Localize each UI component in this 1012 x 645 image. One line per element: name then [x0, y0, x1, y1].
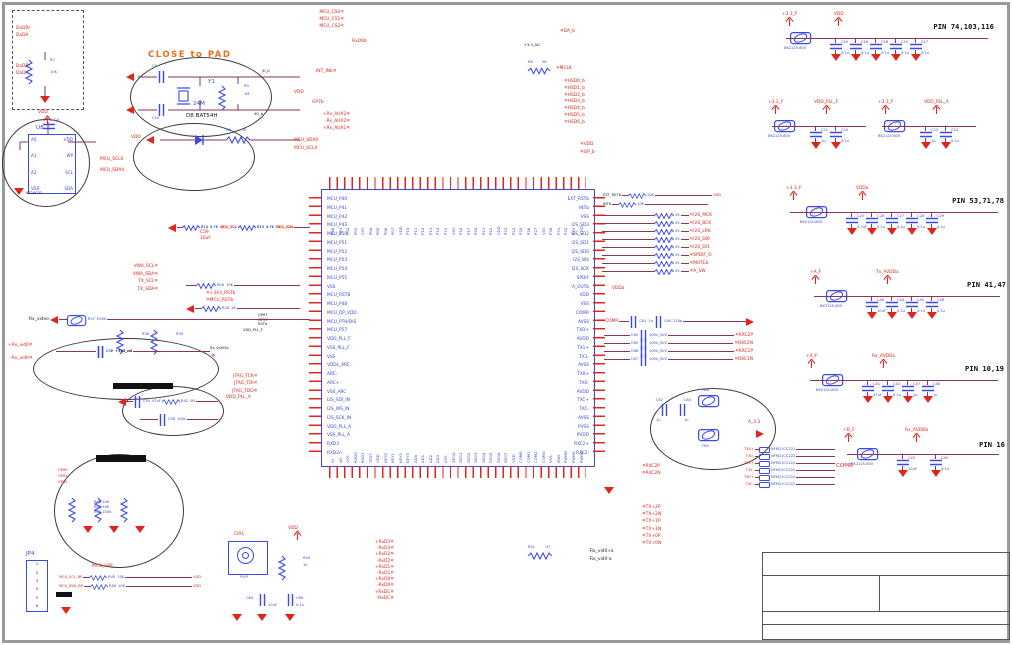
ref-des: C62	[656, 398, 663, 402]
ref-des: C61	[639, 320, 646, 324]
cap-cell: C200.1u	[828, 126, 843, 149]
series-res-row: 33 I2S_DI1	[602, 244, 738, 252]
net-label: MCU_VPP	[92, 564, 113, 569]
pin-label: AVDD	[529, 336, 589, 345]
ground-icon	[871, 54, 881, 61]
pin-label: P20	[473, 193, 481, 235]
capacitor-icon	[810, 131, 822, 138]
power-net: +D_F	[843, 428, 855, 443]
power-icon	[912, 433, 921, 443]
net-label: GP62	[58, 480, 68, 484]
resistor-icon	[654, 252, 674, 260]
capacitor-icon	[886, 217, 898, 224]
ferrite-bead-icon	[774, 119, 796, 133]
pin-label: SEG7	[503, 421, 511, 463]
net-label: Rx_vid0+a	[590, 549, 614, 554]
option-box	[12, 10, 84, 110]
highlight-ellipse-rc	[122, 386, 224, 436]
wire	[602, 271, 654, 273]
ref-des: JP4	[26, 551, 35, 557]
ref-des: R39	[176, 332, 183, 336]
resistor-icon	[654, 220, 674, 228]
net-label: MCU_SCL_BP	[59, 576, 82, 580]
highlight-bar	[96, 455, 146, 462]
capacitor-icon	[922, 385, 934, 392]
net-label: GP60	[58, 468, 68, 472]
net-label: +3.3_AD	[524, 43, 540, 47]
net-label: A_SW	[690, 270, 706, 274]
pin-label: VSS	[327, 354, 357, 363]
pin-label: TX0+	[529, 371, 589, 380]
ground-icon	[883, 396, 893, 403]
value-label: 0.1u	[921, 51, 929, 55]
value-label: 47uF	[152, 400, 161, 404]
net-arrow-icon	[126, 73, 135, 81]
series-res-row: 33 MUTEb	[602, 260, 738, 268]
value-label: 1K	[303, 563, 308, 567]
ic-pins-top	[329, 177, 586, 189]
cap-cell: C4010uF	[864, 296, 879, 319]
pin-label: P33	[571, 193, 579, 235]
rxc-pair: RXC2PRXC2N	[642, 464, 661, 476]
net-label: DaDA	[16, 33, 28, 38]
pin-label: P15	[443, 193, 451, 235]
value-label: 1u	[933, 393, 938, 397]
net-label: MCLK	[556, 66, 572, 71]
resistor-icon	[654, 260, 674, 268]
power-icon	[771, 105, 780, 115]
emi-filter-icon	[759, 461, 770, 467]
value-label: 10K	[102, 505, 109, 509]
wire	[604, 335, 630, 337]
connector-jp4: 123456	[26, 560, 48, 612]
power-icon	[811, 275, 820, 285]
pin-label: RXD0	[353, 421, 361, 463]
capacitor-icon	[890, 43, 902, 50]
pin-label: XI	[330, 421, 338, 463]
rst-row: EXT_RSTb 10K VDD	[602, 192, 722, 200]
title-block-row	[763, 553, 1009, 576]
value-label: 10K	[118, 585, 125, 589]
series-res-row: 33 SPDIF_O	[602, 252, 738, 260]
ref-des: C20	[841, 128, 848, 132]
value-label: 47	[546, 545, 551, 549]
ref-des: R49 10K	[94, 505, 111, 509]
net-label: TX+1N	[642, 527, 661, 532]
ref-des: C65	[631, 342, 638, 346]
wire	[796, 449, 835, 451]
net-label: GP61	[58, 474, 68, 478]
net-label: VDD_PLL_A	[226, 395, 251, 400]
resistor-icon	[90, 583, 108, 591]
filter-bank-41: +A_F Tx_AVDDa PIN 41,47 BK2125-600 C4010…	[810, 270, 1006, 342]
ref-des: C46	[937, 298, 944, 302]
net-label: MCU_SCL0	[100, 157, 123, 162]
wire	[796, 470, 835, 472]
jtag-column: JTAG_TCKJTAG_TDIJTAG_TDO	[232, 374, 257, 394]
pin-label: MCU_P53	[327, 257, 357, 266]
wire	[186, 285, 196, 287]
value-label: 1u	[648, 320, 653, 324]
emi-filter-icon	[759, 482, 770, 488]
value-label: BK2125-600	[816, 388, 838, 392]
capacitor-icon	[846, 217, 858, 224]
ref-des: R15	[257, 226, 264, 230]
pin-label: P02	[345, 193, 353, 235]
capacitor-icon	[830, 43, 842, 50]
net-label: GP7b	[312, 100, 324, 105]
ref-des: R48 10K	[94, 500, 111, 504]
net-label: DDC_SCL	[220, 226, 237, 230]
pin-label: VSS_ARC	[327, 389, 357, 398]
wire	[604, 351, 630, 353]
net-label: Rx_AUX1+	[323, 126, 350, 131]
value-label: 10K	[647, 194, 654, 198]
hv-cap-row: C66 100n_2kV RXC1P	[604, 348, 754, 356]
rxd-column: RxD3+RxD3-RxD2+RxD2-RxD1+RxD1-RxD0+RxD0-…	[352, 540, 394, 601]
pin-label: MCU_P52	[327, 249, 357, 258]
ground-icon	[907, 312, 917, 319]
ref-des: C84	[246, 596, 253, 600]
net-label: INT_INb	[316, 69, 337, 74]
value-label: 56	[542, 60, 547, 64]
pin-label: AVSS	[529, 362, 589, 371]
wire	[683, 321, 746, 323]
pin-label: I2S_SDI_IN	[327, 397, 357, 406]
cap-cell: C460.1u	[924, 296, 939, 319]
net-label: VDDa	[612, 286, 624, 291]
pin-note: PIN 16	[979, 440, 1005, 449]
wire	[602, 231, 654, 233]
pin-label: P10	[405, 193, 413, 235]
power-icon	[834, 17, 843, 27]
wire	[681, 231, 689, 233]
wire	[681, 215, 689, 217]
ref-des: FB8	[702, 388, 709, 392]
ref-des: C67	[631, 358, 638, 362]
cap-cell: C254.7uF	[844, 212, 859, 235]
resistor-icon	[654, 244, 674, 252]
ground-icon	[867, 228, 877, 235]
jp4-row: MCU_SCL_BP R45 10K VDD	[58, 574, 202, 582]
pin-label: MCU_P48	[327, 301, 357, 310]
net-label: JTAG_TCK	[232, 374, 257, 379]
ref-des: C66	[631, 350, 638, 354]
wire	[602, 247, 654, 249]
value-label: 220p	[673, 320, 682, 324]
net-label: I2S_BCK	[690, 222, 712, 226]
wire	[126, 586, 192, 588]
pin-label: P17	[466, 193, 474, 235]
ground-icon	[887, 312, 897, 319]
ground-icon	[911, 54, 921, 61]
value-label: 1u	[913, 393, 918, 397]
ic-top-pin-names: P00P01P02P03VSSP04P05P06P07VDDP10P11P12P…	[330, 193, 586, 235]
wire	[668, 343, 734, 345]
pin-note: PIN 74,103,116	[933, 22, 994, 31]
key-net-column: GP60GP61GP62	[58, 468, 68, 484]
net-label: I2S_LRK	[690, 230, 711, 234]
cap-cell: C18 0.1u	[868, 38, 883, 61]
net-label: RXC1P	[735, 350, 753, 354]
power-net: Rx_AVDDa	[872, 354, 895, 369]
capacitor-icon	[866, 301, 878, 308]
pin-label: MCU_P57	[327, 327, 357, 336]
net-label: RXC1N	[734, 358, 753, 362]
value-label: 0.1u	[941, 467, 949, 471]
emi-filter-row: TX1- NFM21CC222	[735, 467, 835, 474]
value-label: 1K	[242, 128, 247, 132]
cap-cell: C211u	[808, 126, 823, 149]
value-label: 1u	[821, 139, 826, 143]
cap-cell: C440.1u	[884, 296, 899, 319]
net-label: TX1+	[736, 462, 754, 466]
wire	[604, 343, 630, 345]
pin-label: P32	[563, 193, 571, 235]
wire	[59, 319, 67, 321]
value-label: NFM21CC222	[771, 469, 795, 473]
pin-label: MCU_PTH/DIS	[327, 319, 357, 328]
series-res-row: 33 I2S_LRK	[602, 228, 738, 236]
ferrite-bead-icon	[698, 428, 720, 442]
ref-des: C58	[168, 418, 175, 422]
wire	[602, 263, 654, 265]
wire	[140, 419, 158, 421]
value-label: 10K	[102, 500, 109, 504]
value-label: 10K	[226, 284, 233, 288]
capacitor-icon	[926, 301, 938, 308]
value-label: 1K	[231, 307, 236, 311]
emi-filter-icon	[759, 447, 770, 453]
net-label: RxD0b	[352, 39, 367, 44]
net-label: +3V3_RSTb	[206, 291, 235, 296]
ground-icon	[831, 54, 841, 61]
pin-label: SPDIF	[529, 275, 589, 284]
ir-receiver	[228, 541, 268, 575]
wire	[668, 351, 734, 353]
series-res-row: 33 I2S_MCK	[602, 212, 738, 220]
value-label: 33	[675, 230, 680, 234]
ref-des: C63	[684, 398, 691, 402]
capacitor-icon	[158, 414, 167, 426]
wire	[234, 285, 300, 287]
net-arrow-icon	[746, 318, 754, 326]
capacitor-icon	[258, 594, 267, 606]
pin-number: 2	[36, 572, 38, 575]
pin-label: A1	[31, 153, 39, 158]
cap-cell: C4310uF	[895, 454, 910, 477]
value-label: 0.1u	[937, 225, 945, 229]
net-label: I2S_DI0	[690, 238, 710, 242]
ref-des: C29	[937, 214, 944, 218]
ground-icon	[903, 396, 913, 403]
cap-bank: C211uC200.1u	[808, 126, 843, 149]
ref-des: FB9	[702, 444, 709, 448]
power-icon	[822, 105, 831, 115]
ferrite-bead-icon	[857, 447, 879, 461]
power-net: VDD	[834, 12, 844, 27]
net-label: RXC2N	[642, 471, 661, 476]
capacitor-icon	[906, 301, 918, 308]
title-block-row	[763, 611, 1009, 625]
pin-label: I2S_SCK	[529, 266, 589, 275]
pin-label: VSS	[529, 301, 589, 310]
pin-label: RXD1	[360, 421, 368, 463]
pin-note: PIN 10,19	[965, 364, 1004, 373]
ref-des: R49	[94, 505, 101, 509]
net-label: TX0-	[736, 455, 754, 459]
cap-cell: C260.1u	[864, 212, 879, 235]
cap-cell: C231u	[918, 126, 933, 149]
net-label: I2S_MCK	[690, 214, 712, 218]
pin-label: SDA	[64, 186, 73, 191]
net-label: TX_SCL	[96, 279, 158, 284]
net-label: I2S_DI1	[690, 246, 710, 250]
hv-cap-rows: C64 100n_2kV RXC2P C65 100n_2kV RXC2N C6…	[604, 332, 754, 364]
ref-des: C17	[921, 40, 928, 44]
resistor-icon	[654, 236, 674, 244]
power-net: Rx_AVDDb	[905, 428, 928, 443]
ref-des: R28	[222, 307, 229, 311]
pin-label: I2S_SD0	[529, 249, 589, 258]
value-label: 0.1u	[951, 139, 959, 143]
part-number: AT24C02	[26, 191, 42, 195]
pin-label: TX1-	[529, 354, 589, 363]
wire	[681, 255, 689, 257]
pin-label: MCU_P54	[327, 266, 357, 275]
emi-filter-icon	[759, 475, 770, 481]
wire	[655, 195, 712, 197]
ground-icon	[907, 228, 917, 235]
ground-icon	[847, 228, 857, 235]
net-label: MCU_RSTb	[206, 298, 233, 303]
power-icon	[807, 359, 816, 369]
capacitor-icon	[870, 43, 882, 50]
ref-des: R6	[528, 60, 533, 64]
resistor-icon	[654, 268, 674, 276]
wire	[133, 351, 210, 353]
net-label: DDC_SDA	[276, 226, 293, 230]
ref-des: C10	[152, 116, 159, 120]
ref-des: C49	[941, 456, 948, 460]
power-net: +3.3_F	[768, 100, 783, 115]
ref-des: R8	[226, 128, 231, 132]
net-label: MUTEb	[690, 262, 709, 266]
resistor-icon	[182, 224, 200, 232]
net-label: COMR	[605, 320, 618, 324]
value-label: 10K	[50, 70, 57, 74]
net-label: MCU_SDA0	[100, 168, 124, 173]
value-label: BK2125-600	[878, 134, 900, 138]
net-label: VDD	[38, 110, 48, 115]
wire	[619, 321, 629, 323]
value-label: NFM21CC222	[771, 455, 795, 459]
pin-label: MCU_RSTB	[327, 292, 357, 301]
value-label: 1u	[684, 418, 689, 422]
net-label: VDD	[193, 576, 201, 580]
ground-icon	[891, 54, 901, 61]
cap-bank: C254.7uFC260.1uC270.1uC280.1uC290.1u	[844, 212, 939, 235]
ground-icon	[931, 470, 941, 477]
net-arrow-icon	[126, 106, 135, 114]
net-label: XO_b	[254, 112, 263, 116]
wire	[668, 359, 734, 361]
net-label: RXC2P	[642, 464, 661, 469]
wire	[602, 255, 654, 257]
cap-cell: C420.1u	[880, 380, 895, 403]
ground-icon	[257, 614, 267, 621]
net-label: JTAG_TDI	[232, 381, 257, 386]
net-arrow-icon	[211, 344, 215, 360]
capacitor-icon	[930, 459, 942, 466]
ic-pins-bottom	[329, 466, 586, 478]
cap-cell: C280.1u	[904, 212, 919, 235]
net-label: VDD	[294, 90, 304, 95]
value-label: NFM21CC222	[771, 476, 795, 480]
wire	[681, 271, 689, 273]
reset-row: R28 1K	[186, 305, 300, 313]
series-res-row: 33 I2S_DI0	[602, 236, 738, 244]
net-label: HSD6_b	[564, 120, 585, 125]
value-label: 24M	[193, 101, 205, 107]
ground-icon	[851, 54, 861, 61]
ferrite-bead-icon	[698, 394, 720, 408]
value-label: 33	[675, 238, 680, 242]
pin-label: MCU_P55	[327, 275, 357, 284]
ground-icon	[285, 614, 295, 621]
pin-label: P27	[533, 193, 541, 235]
capacitor-icon	[862, 385, 874, 392]
capacitor-icon	[920, 131, 932, 138]
power-net: Tx_AVDDa	[876, 270, 899, 285]
ref-des: R50	[94, 510, 101, 514]
ground-icon	[941, 142, 951, 149]
pullup-row: R14 4.7K DDC_SCL R15 4.7K DDC_SDA	[168, 224, 310, 232]
value-label: 100n_2kV	[649, 334, 667, 338]
ref-des: R41	[528, 545, 535, 549]
net-label: JTAG_TDO	[232, 389, 257, 394]
emi-filter-row: TX0- NFM21CC222	[735, 453, 835, 460]
pin-label: P03	[353, 193, 361, 235]
net-label: MCU_SDA0	[294, 138, 318, 143]
pin-label: TXC+	[529, 397, 589, 406]
pin-label: TXC-	[529, 406, 589, 415]
pin-label: PWM2	[579, 421, 587, 463]
power-icon	[858, 191, 867, 201]
pin-label: VSS	[443, 421, 451, 463]
series-res-row: 33 I2S_BCK	[602, 220, 738, 228]
ref-des: C48	[933, 382, 940, 386]
filter-bank-plla: +3.3_F VDD_PLL_A BK2125-600 C231uC240.1u	[878, 100, 982, 170]
wire	[107, 319, 310, 321]
net-label: TX0+	[736, 448, 754, 452]
pin-label: P16	[458, 193, 466, 235]
pin-label: VSS	[345, 421, 353, 463]
wire	[294, 227, 310, 229]
ground-icon	[887, 228, 897, 235]
value-label: 10uF	[268, 603, 277, 607]
wire	[56, 351, 96, 353]
rc-row: C54 47uF R42 0R	[118, 398, 218, 406]
cap-bank: C4310uFC490.1u	[895, 454, 943, 477]
value-label: 4.7K	[210, 226, 218, 230]
filter-bank-74: +3.3_F VDD PIN 74,103,116 BK2125-600 C15…	[782, 12, 994, 84]
cap-cell: C270.1u	[884, 212, 899, 235]
hsd-column: HSD0_bHSD1_bHSD2_bHSD3_bHSD4_bHSD5_bHSD6…	[564, 79, 585, 125]
ferrite-bead-icon	[67, 314, 87, 327]
pin-label: COM0	[518, 421, 526, 463]
net-label: VDD	[131, 135, 141, 140]
